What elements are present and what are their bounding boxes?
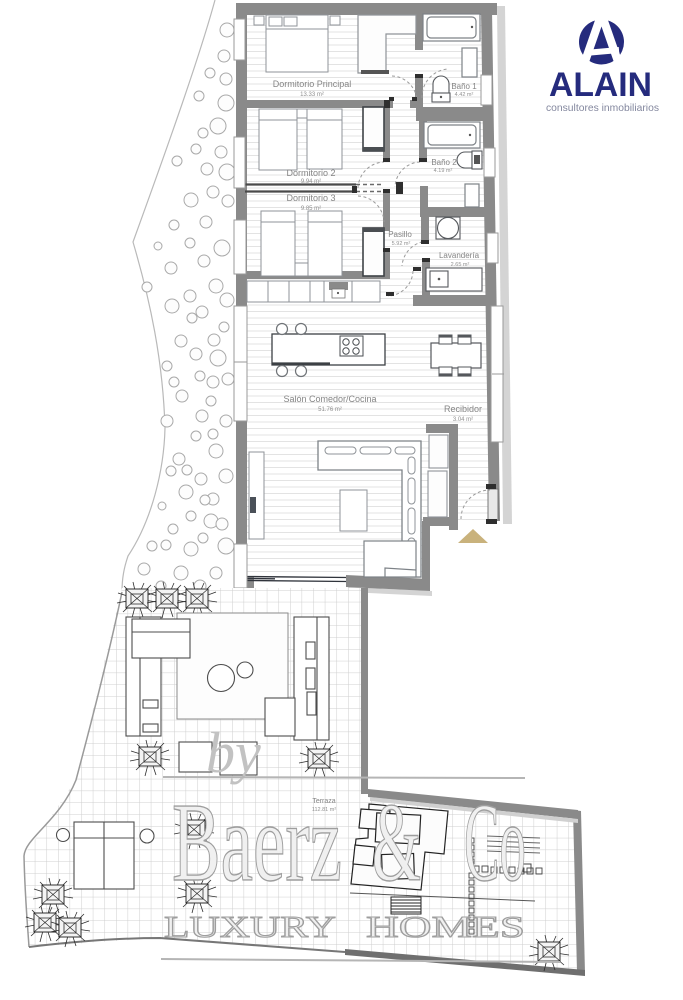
svg-text:Lavandería: Lavandería xyxy=(439,251,480,260)
svg-text:Dormitorio 3: Dormitorio 3 xyxy=(286,193,335,203)
svg-text:Baño 2: Baño 2 xyxy=(431,158,457,167)
svg-text:9.94 m²: 9.94 m² xyxy=(301,179,321,185)
svg-text:HOMES: HOMES xyxy=(366,909,525,944)
svg-text:Pasillo: Pasillo xyxy=(388,230,412,239)
svg-text:ALAIN: ALAIN xyxy=(549,66,652,104)
svg-text:2.65 m²: 2.65 m² xyxy=(451,262,470,268)
svg-text:consultores inmobiliarios: consultores inmobiliarios xyxy=(546,102,659,114)
svg-text:4.19 m²: 4.19 m² xyxy=(434,168,453,174)
svg-text:4.42 m²: 4.42 m² xyxy=(455,92,474,98)
svg-text:&: & xyxy=(372,781,421,905)
svg-text:9.85 m²: 9.85 m² xyxy=(301,206,321,212)
svg-text:Dormitorio Principal: Dormitorio Principal xyxy=(273,79,352,89)
svg-text:3.04 m²: 3.04 m² xyxy=(453,417,473,423)
svg-text:13.33 m²: 13.33 m² xyxy=(300,92,324,98)
svg-text:Salón Comedor/Cocina: Salón Comedor/Cocina xyxy=(283,394,376,404)
svg-text:LUXURY: LUXURY xyxy=(164,909,336,944)
svg-text:Baño 1: Baño 1 xyxy=(451,82,477,91)
svg-text:Co: Co xyxy=(464,781,526,905)
svg-text:Baerz: Baerz xyxy=(172,781,342,905)
svg-text:Dormitorio 2: Dormitorio 2 xyxy=(286,168,335,178)
svg-text:51.76 m²: 51.76 m² xyxy=(318,407,342,413)
svg-text:by: by xyxy=(206,720,261,785)
svg-text:5.92 m²: 5.92 m² xyxy=(392,241,411,247)
svg-text:Recibidor: Recibidor xyxy=(444,404,482,414)
